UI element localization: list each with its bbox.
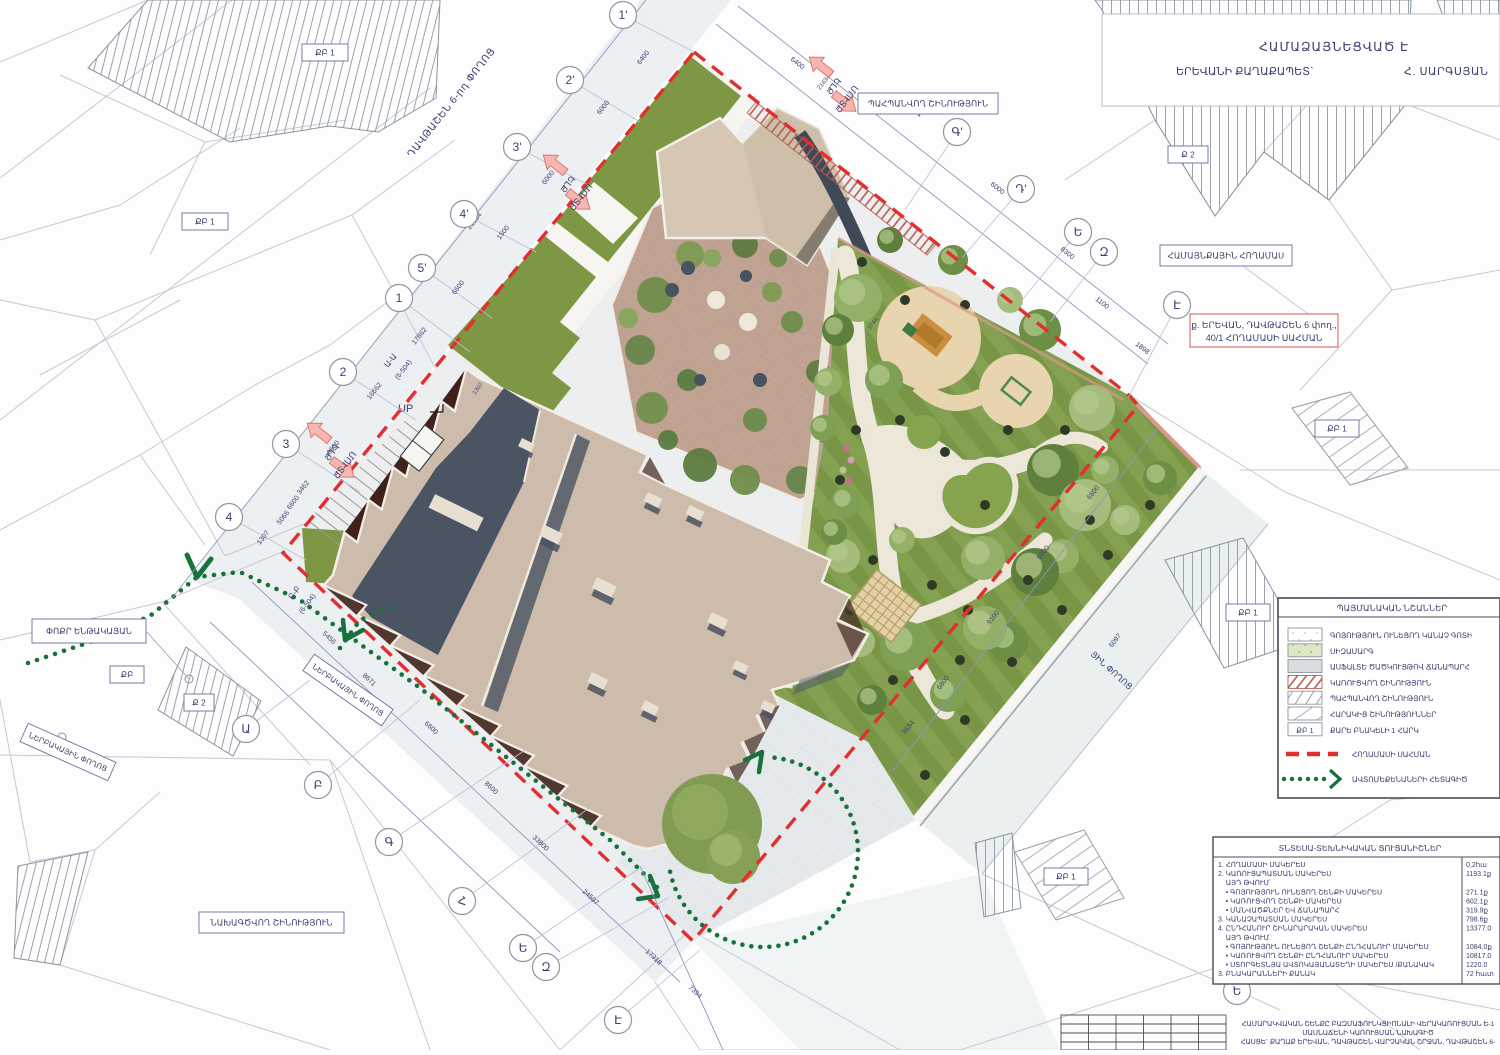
svg-text:ՄԱՍՆԱՃԵՆԻ ԿԱՌՈՒՑՄԱՆ ՆԱԽԱԳԻԾ: ՄԱՍՆԱՃԵՆԻ ԿԱՌՈՒՑՄԱՆ ՆԱԽԱԳԻԾ: [1302, 1029, 1434, 1037]
svg-text:ԱՎՏՈՄԵՔԵՆԱՆԵՐԻ ՀԵՏԱԳԻԾ: ԱՎՏՈՄԵՔԵՆԱՆԵՐԻ ՀԵՏԱԳԻԾ: [1352, 775, 1467, 784]
svg-text:2': 2': [566, 73, 575, 87]
svg-text:Հ: Հ: [458, 894, 467, 908]
svg-text:Գ': Գ': [951, 125, 962, 139]
svg-text:1': 1': [619, 8, 628, 22]
svg-text:• ԿԱՌՈՒՑՎՈՂ ՇԵՆՔԻ ԸՆԴՀԱՆՈՒՐ ՄԱ: • ԿԱՌՈՒՑՎՈՂ ՇԵՆՔԻ ԸՆԴՀԱՆՈՒՐ ՄԱԿԵՐԵՍ: [1218, 952, 1388, 960]
svg-text:319.9ք: 319.9ք: [1466, 908, 1489, 915]
svg-text:1: 1: [396, 291, 403, 305]
svg-text:ՓՈՔՐ ԵՆԹԱԿԱՅԱՆ: ՓՈՔՐ ԵՆԹԱԿԱՅԱՆ: [46, 626, 132, 636]
svg-text:0,2հա: 0,2հա: [1466, 861, 1487, 869]
svg-text:ԵՐԵՎԱՆԻ ՔԱՂԱՔԱՊԵՏ`: ԵՐԵՎԱՆԻ ՔԱՂԱՔԱՊԵՏ`: [1176, 66, 1314, 78]
svg-text:ԱՍՖԱԼՏԵ ԾԱԾԿՈՒՅԹՈՎ ՃԱՆԱՊԱՐՀ: ԱՍՖԱԼՏԵ ԾԱԾԿՈՒՅԹՈՎ ՃԱՆԱՊԱՐՀ: [1330, 663, 1470, 672]
svg-text:ՀԱՐԱԿԻՑ ՇԻՆՈՒԹՅՈՒՆՆԵՐ: ՀԱՐԱԿԻՑ ՇԻՆՈՒԹՅՈՒՆՆԵՐ: [1330, 710, 1436, 719]
svg-text:798.6ք: 798.6ք: [1466, 917, 1489, 924]
svg-text:ՀԱՍՑԵ` ՔԱՂԱՔ ԵՐԵՎԱՆ, ԴԱՎԹԱՇԵՆ: ՀԱՍՑԵ` ՔԱՂԱՔ ԵՐԵՎԱՆ, ԴԱՎԹԱՇԵՆ ՎԱՐՉԱԿԱՆ Շ…: [1241, 1038, 1496, 1046]
svg-text:2. ԿԱՌՈՒՑԱՊԱՏՄԱՆ ՄԱԿԵՐԵՍ: 2. ԿԱՌՈՒՑԱՊԱՏՄԱՆ ՄԱԿԵՐԵՍ: [1218, 870, 1331, 878]
svg-text:ԿԱՌՈՒՑՎՈՂ ՇԻՆՈՒԹՅՈՒՆ: ԿԱՌՈՒՑՎՈՂ ՇԻՆՈՒԹՅՈՒՆ: [1330, 678, 1431, 687]
svg-text:• ՍՏՈՐԳԵՏՆՅԱ ԱՎՏՈԿԱՅԱՆԱՏԵՂԻ ՄԱ: • ՍՏՈՐԳԵՏՆՅԱ ԱՎՏՈԿԱՅԱՆԱՏԵՂԻ ՄԱԿԵՐԵՍ /ՔԱՆ…: [1218, 961, 1434, 969]
svg-text:ՔԲ 1: ՔԲ 1: [1296, 726, 1313, 735]
svg-text:Դ': Դ': [1015, 182, 1026, 196]
svg-text:5': 5': [418, 261, 427, 275]
svg-text:ՏՆՏԵՍԱ-ՏԵԽՆԻԿԱԿԱՆ ՑՈՒՑԱՆԻՇՆԵՐ: ՏՆՏԵՍԱ-ՏԵԽՆԻԿԱԿԱՆ ՑՈՒՑԱՆԻՇՆԵՐ: [1279, 844, 1442, 853]
svg-text:ք. ԵՐԵՎԱՆ, ԴԱՎԹԱՇԵՆ 6 փող.,: ք. ԵՐԵՎԱՆ, ԴԱՎԹԱՇԵՆ 6 փող.,: [1191, 320, 1337, 330]
svg-text:Է: Է: [614, 1013, 622, 1027]
svg-text:Զ: Զ: [541, 960, 550, 974]
svg-text:• ԳՈՅՈՒԹՅՈՒՆ ՈՒՆԵՑՈՂ ՇԵՆՔԻ ԸՆԴ: • ԳՈՅՈՒԹՅՈՒՆ ՈՒՆԵՑՈՂ ՇԵՆՔԻ ԸՆԴՀԱՆՈՒՐ ՄԱԿ…: [1218, 943, 1429, 951]
svg-text:Զ: Զ: [1099, 245, 1108, 259]
svg-text:1193.1ք: 1193.1ք: [1466, 871, 1492, 878]
svg-text:Ե: Ե: [1233, 984, 1242, 998]
svg-text:• ԳՈՅՈՒԹՅՈՒՆ ՈՒՆԵՑՈՂ ՇԵՆՔԻ ՄԱԿ: • ԳՈՅՈՒԹՅՈՒՆ ՈՒՆԵՑՈՂ ՇԵՆՔԻ ՄԱԿԵՐԵՍ: [1218, 888, 1382, 896]
svg-text:ՔԲ 1: ՔԲ 1: [195, 217, 215, 227]
svg-text:3. ԲՆԱԿԱՐԱՆՆԵՐԻ ՔԱՆԱԿ: 3. ԲՆԱԿԱՐԱՆՆԵՐԻ ՔԱՆԱԿ: [1218, 970, 1315, 978]
svg-text:ՆԱԽԱԳԾՎՈՂ ՇԻՆՈՒԹՅՈՒՆ: ՆԱԽԱԳԾՎՈՂ ՇԻՆՈՒԹՅՈՒՆ: [211, 918, 334, 928]
svg-text:ԳՈՅՈՒԹՅՈՒՆ ՈՒՆԵՑՈՂ ԿԱՆԱՉ ԳՈՏԻ: ԳՈՅՈՒԹՅՈՒՆ ՈՒՆԵՑՈՂ ԿԱՆԱՉ ԳՈՏԻ: [1330, 631, 1472, 640]
svg-text:ՀԱՄԱՅՆՔԱՅԻՆ ՀՈՂԱՄԱՍ: ՀԱՄԱՅՆՔԱՅԻՆ ՀՈՂԱՄԱՍ: [1168, 251, 1284, 261]
svg-text:ՀԱՄԱՁԱՅՆԵՑՎԱԾ Է: ՀԱՄԱՁԱՅՆԵՑՎԱԾ Է: [1259, 40, 1409, 54]
svg-text:1. ՀՈՂԱՄԱՍԻ ՄԱԿԵՐԵՍ: 1. ՀՈՂԱՄԱՍԻ ՄԱԿԵՐԵՍ: [1218, 861, 1306, 869]
svg-text:602.1ք: 602.1ք: [1466, 898, 1489, 905]
svg-text:271.1ք: 271.1ք: [1466, 889, 1489, 896]
svg-text:ՔԱՐԵ ԲՆԱԿԵԼԻ 1 ՀԱՐԿ: ՔԱՐԵ ԲՆԱԿԵԼԻ 1 ՀԱՐԿ: [1330, 726, 1419, 735]
svg-text:Ե: Ե: [1074, 225, 1083, 239]
svg-text:3: 3: [283, 437, 290, 451]
svg-text:• ՄԱՆՎԱԾՔՆԵՐ ԵՎ ՃԱՆԱՊԱՐՀ: • ՄԱՆՎԱԾՔՆԵՐ ԵՎ ՃԱՆԱՊԱՐՀ: [1218, 907, 1340, 915]
svg-text:ՔԲ 1: ՔԲ 1: [315, 48, 335, 58]
svg-text:10817.0: 10817.0: [1466, 953, 1491, 960]
svg-text:Բ: Բ: [314, 778, 323, 792]
svg-text:4: 4: [226, 510, 233, 524]
svg-text:Գ: Գ: [384, 835, 393, 849]
svg-text:ԱՅԴ ԹՎՈՒՄ`: ԱՅԴ ԹՎՈՒՄ`: [1218, 879, 1272, 887]
svg-text:4. ԸՆԴՀԱՆՈՒՐ ՇԻՆԱՐԱՐԱԿԱՆ ՄԱԿԵՐ: 4. ԸՆԴՀԱՆՈՒՐ ՇԻՆԱՐԱՐԱԿԱՆ ՄԱԿԵՐԵՍ: [1218, 925, 1367, 933]
svg-text:ՀՈՂԱՄԱՍԻ ՍԱՀՄԱՆ: ՀՈՂԱՄԱՍԻ ՍԱՀՄԱՆ: [1352, 750, 1430, 759]
svg-text:ՍԻԶԱՄԱՐԳ: ՍԻԶԱՄԱՐԳ: [1330, 647, 1374, 656]
svg-text:ՔԲ 1: ՔԲ 1: [1056, 872, 1076, 882]
svg-text:ՊԱՀՊԱՆՎՈՂ ՇԻՆՈՒԹՅՈՒՆ: ՊԱՀՊԱՆՎՈՂ ՇԻՆՈՒԹՅՈՒՆ: [1330, 694, 1433, 703]
svg-text:1220.0: 1220.0: [1466, 962, 1488, 969]
svg-text:3. ԿԱՆԱՉԱՊԱՏՄԱՆ ՄԱԿԵՐԵՍ: 3. ԿԱՆԱՉԱՊԱՏՄԱՆ ՄԱԿԵՐԵՍ: [1218, 916, 1327, 924]
svg-text:ՊԱՀՊԱՆՎՈՂ ՇԻՆՈՒԹՅՈՒՆ: ՊԱՀՊԱՆՎՈՂ ՇԻՆՈՒԹՅՈՒՆ: [868, 99, 989, 109]
svg-text:1084.0ք: 1084.0ք: [1466, 944, 1492, 951]
svg-text:72 հատ: 72 հատ: [1466, 970, 1494, 978]
svg-text:40/1 ՀՈՂԱՄԱՍԻ ՍԱՀՄԱՆ: 40/1 ՀՈՂԱՄԱՍԻ ՍԱՀՄԱՆ: [1206, 333, 1323, 343]
svg-text:• ԿԱՌՈՒՑՎՈՂ ՇԵՆՔԻ ՄԱԿԵՐԵՍ: • ԿԱՌՈՒՑՎՈՂ ՇԵՆՔԻ ՄԱԿԵՐԵՍ: [1218, 897, 1342, 905]
svg-text:ՊԱՅՄԱՆԱԿԱՆ ՆՇԱՆՆԵՐ: ՊԱՅՄԱՆԱԿԱՆ ՆՇԱՆՆԵՐ: [1337, 603, 1447, 613]
svg-text:Ք 2: Ք 2: [1181, 150, 1195, 160]
svg-text:ՔԲ: ՔԲ: [121, 670, 134, 680]
svg-text:ԱՅԴ ԹՎՈՒՄ`: ԱՅԴ ԹՎՈՒՄ`: [1218, 934, 1272, 942]
svg-text:Է: Է: [1173, 298, 1181, 312]
svg-text:Ե: Ե: [519, 941, 528, 955]
svg-text:2: 2: [340, 365, 347, 379]
svg-text:3': 3': [513, 140, 522, 154]
svg-text:ՔԲ 1: ՔԲ 1: [1327, 424, 1347, 434]
svg-text:ՀԱՄԱՐԱԿՎԱԿԱՆ ՇԵՆՔԸ ԲԱԶՄԱՖՈՒՆԿՑ: ՀԱՄԱՐԱԿՎԱԿԱՆ ՇԵՆՔԸ ԲԱԶՄԱՖՈՒՆԿՑԻՈՆԱԼԻ ՎԵՐ…: [1242, 1020, 1495, 1028]
svg-text:Ա: Ա: [241, 722, 250, 736]
svg-text:Ք 2: Ք 2: [192, 698, 206, 708]
svg-text:4': 4': [460, 207, 469, 221]
svg-text:ՔԲ 1: ՔԲ 1: [1238, 608, 1258, 618]
svg-text:Հ. ՍԱՐԳՍՅԱՆ: Հ. ՍԱՐԳՍՅԱՆ: [1404, 66, 1488, 78]
svg-text:13377.0: 13377.0: [1466, 926, 1491, 933]
